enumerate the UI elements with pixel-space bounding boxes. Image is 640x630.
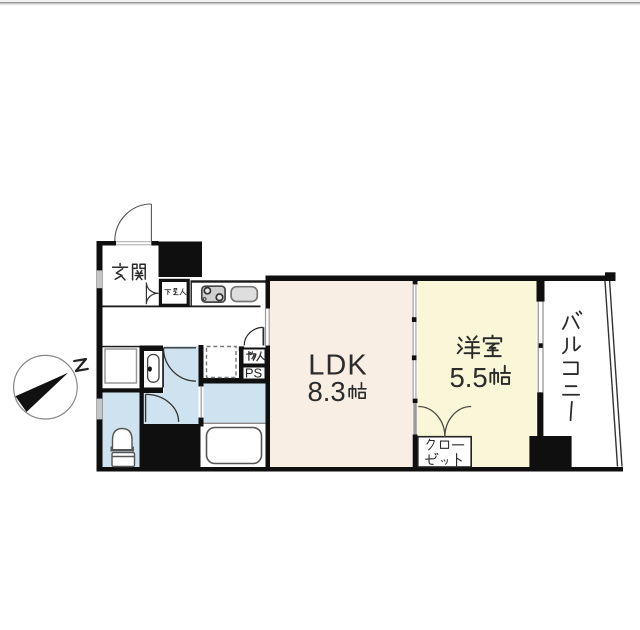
svg-text:5.5: 5.5 [450, 362, 488, 393]
svg-text:8.3: 8.3 [308, 376, 346, 407]
svg-text:PS: PS [245, 366, 263, 381]
